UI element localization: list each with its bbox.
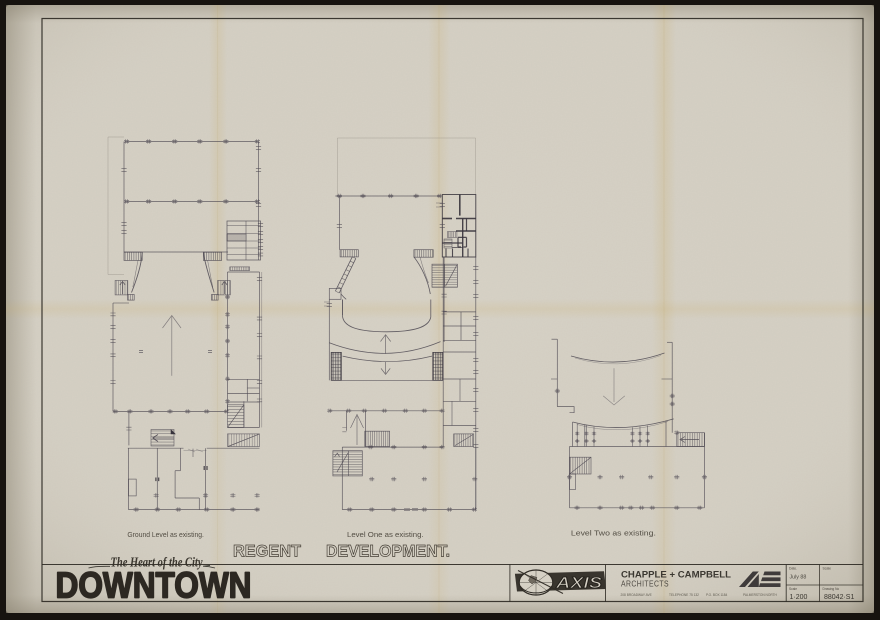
svg-text:Ground Level as existing.: Ground Level as existing. bbox=[127, 530, 203, 539]
svg-text:PALMERSTON NORTH: PALMERSTON NORTH bbox=[743, 593, 778, 597]
svg-text:DEVELOPMENT.: DEVELOPMENT. bbox=[326, 543, 450, 561]
svg-text:1·200: 1·200 bbox=[790, 594, 808, 601]
svg-text:DOWNTOWN: DOWNTOWN bbox=[56, 565, 252, 606]
svg-text:REGENT: REGENT bbox=[233, 543, 301, 561]
svg-text:CHAPPLE + CAMPBELL: CHAPPLE + CAMPBELL bbox=[621, 570, 732, 580]
svg-text:208 BROADWAY AVE: 208 BROADWAY AVE bbox=[621, 593, 652, 597]
svg-text:Level Two as existing.: Level Two as existing. bbox=[571, 529, 656, 538]
svg-text:Scale: Scale bbox=[823, 567, 832, 571]
svg-text:Level One as existing.: Level One as existing. bbox=[347, 530, 424, 539]
svg-text:Date.: Date. bbox=[789, 567, 797, 571]
svg-text:P.O. BOX 1184: P.O. BOX 1184 bbox=[706, 593, 728, 597]
svg-text:ARCHITECTS: ARCHITECTS bbox=[621, 579, 669, 588]
svg-text:TELEPHONE 75 132: TELEPHONE 75 132 bbox=[669, 593, 699, 597]
svg-text:88042·S1: 88042·S1 bbox=[824, 594, 854, 601]
svg-text:AXIS: AXIS bbox=[555, 575, 603, 592]
svg-text:Scale: Scale bbox=[789, 587, 797, 591]
svg-text:Drawing No: Drawing No bbox=[823, 587, 840, 591]
svg-text:July 88: July 88 bbox=[790, 575, 807, 581]
